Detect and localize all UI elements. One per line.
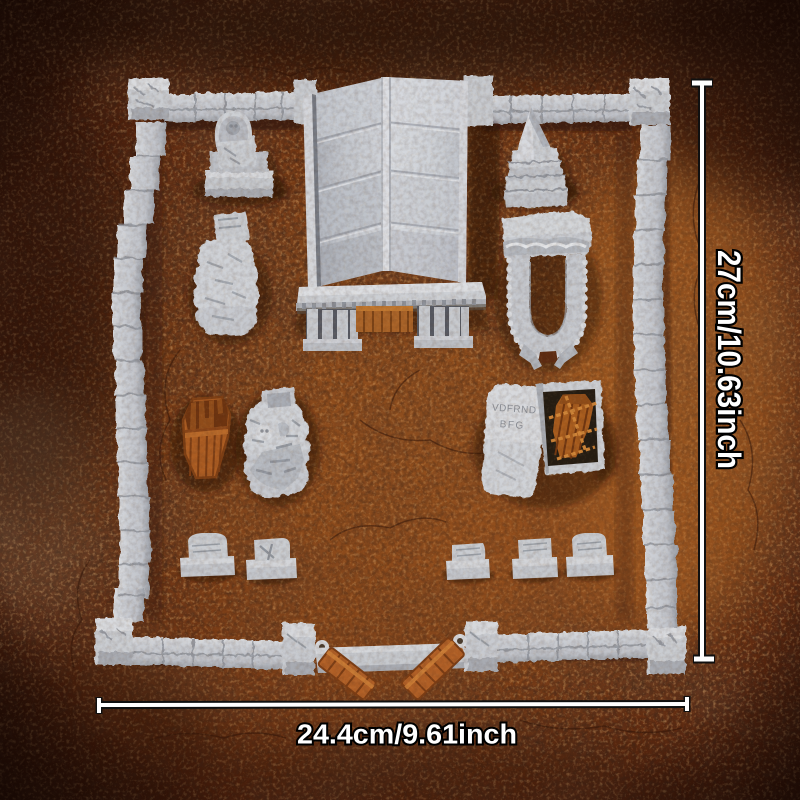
svg-text:27cm/10.63inch: 27cm/10.63inch <box>711 250 747 469</box>
svg-text:24.4cm/9.61inch: 24.4cm/9.61inch <box>297 719 517 750</box>
